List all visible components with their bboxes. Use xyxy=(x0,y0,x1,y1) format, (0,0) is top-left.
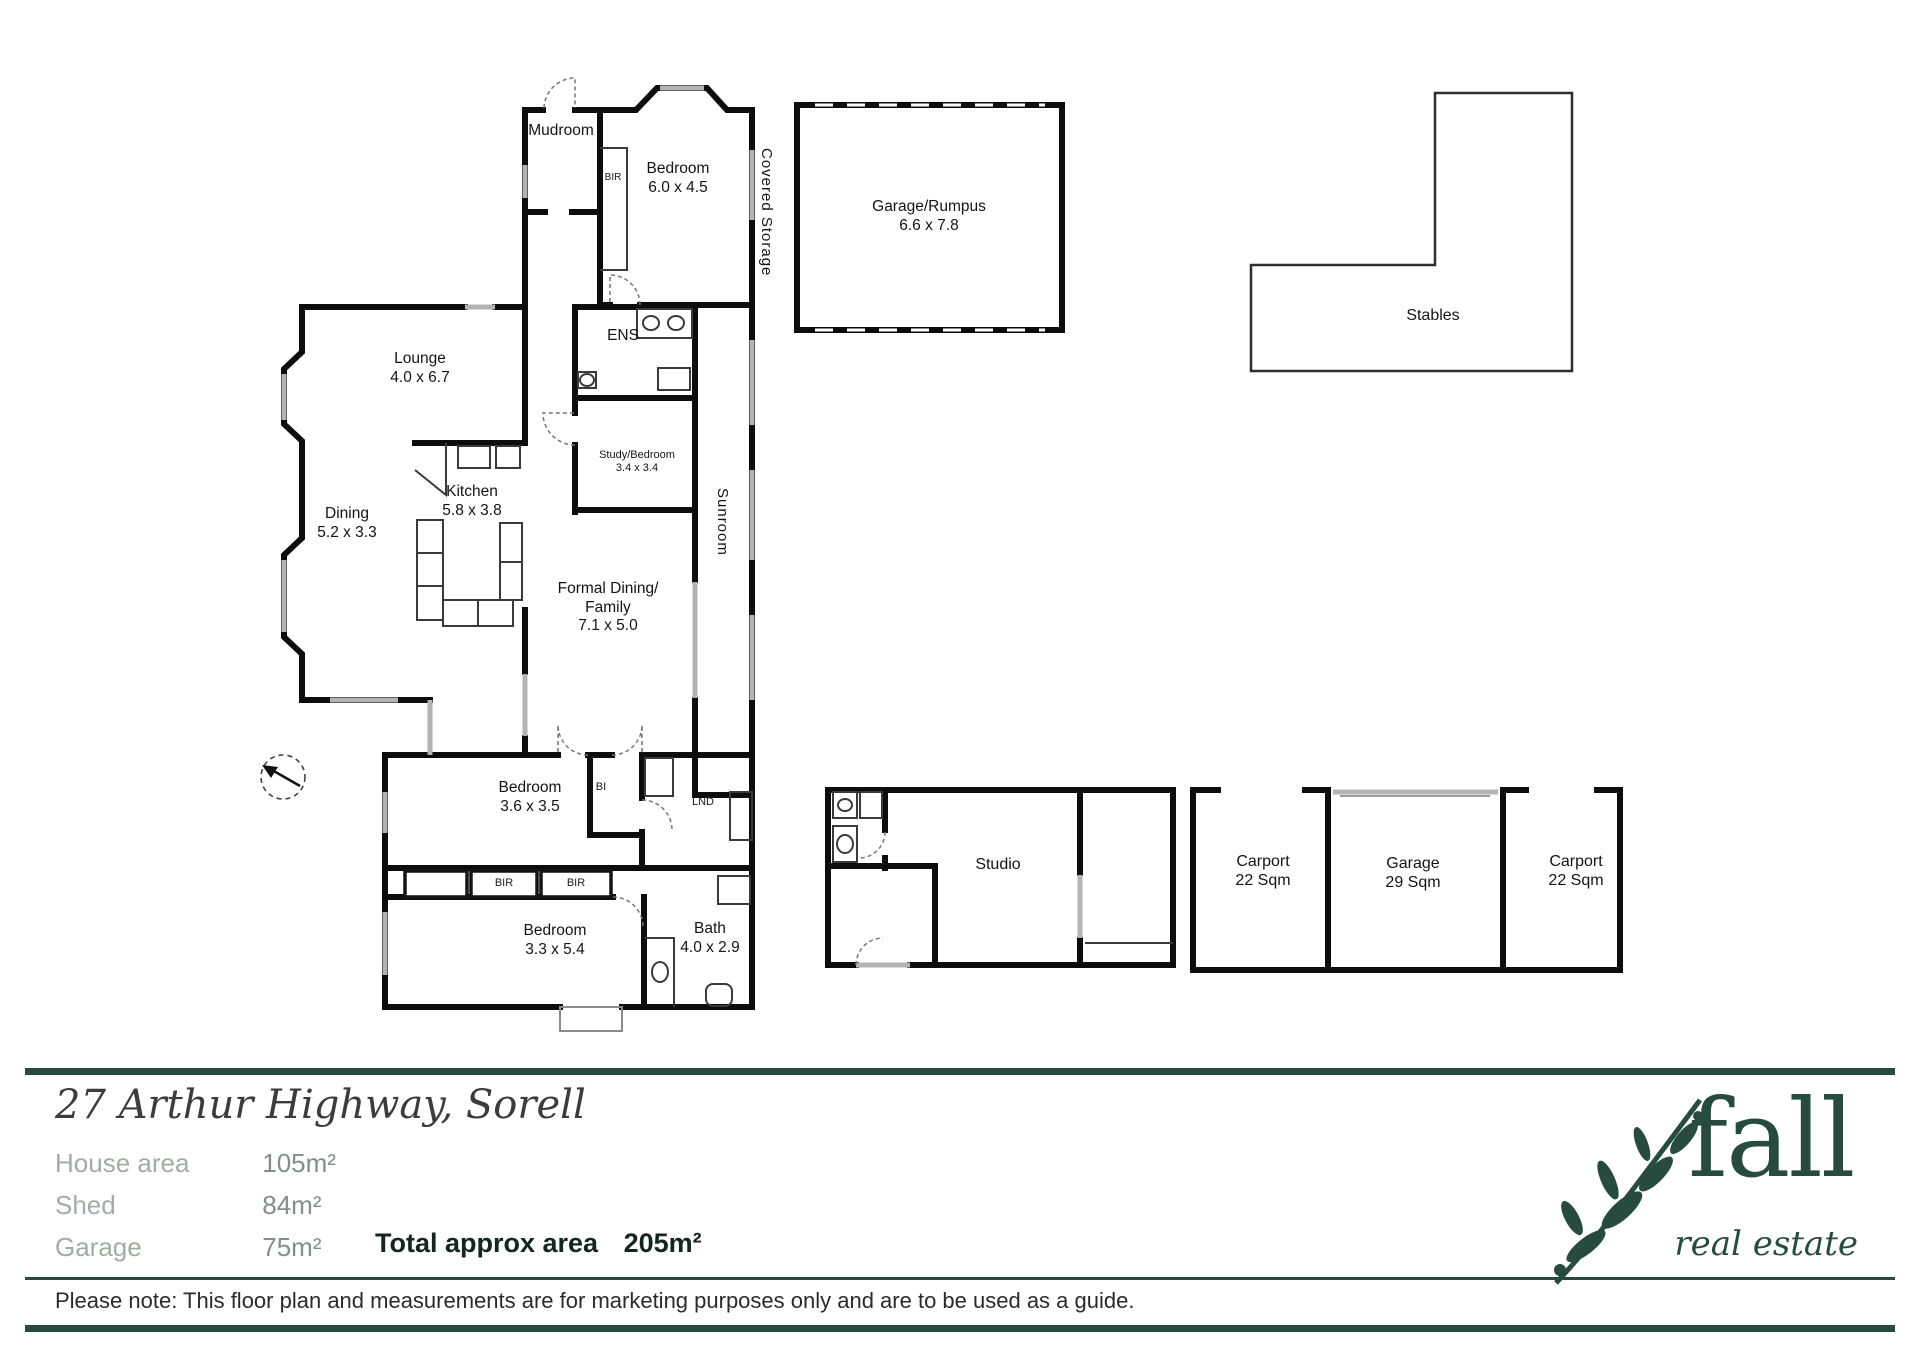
area-row-garage: Garage 75m² xyxy=(55,1232,321,1263)
area-label: Garage xyxy=(55,1232,255,1263)
label-covered-storage: Covered Storage xyxy=(758,148,775,276)
room-label-study-bedroom: Study/Bedroom3.4 x 3.4 xyxy=(599,449,675,475)
room-label-kitchen: Kitchen5.8 x 3.8 xyxy=(442,483,501,520)
logo-brand-text: fall xyxy=(1688,1086,1853,1194)
area-value: 84m² xyxy=(262,1190,321,1220)
closet-label-bir-a: BIR xyxy=(495,877,513,890)
room-label-carport-right: Carport22 Sqm xyxy=(1548,852,1603,890)
total-area-value: 205m² xyxy=(624,1228,702,1258)
room-label-carport-left: Carport22 Sqm xyxy=(1235,852,1290,890)
room-label-garage-rumpus: Garage/Rumpus6.6 x 7.8 xyxy=(872,198,986,235)
property-address: 27 Arthur Highway, Sorell xyxy=(55,1082,586,1128)
total-area: Total approx area 205m² xyxy=(375,1228,702,1259)
room-label-bedroom-top: Bedroom6.0 x 4.5 xyxy=(647,160,710,197)
porch-step xyxy=(560,1007,622,1031)
room-label-studio: Studio xyxy=(975,855,1020,874)
divider-bottom xyxy=(25,1325,1895,1332)
area-label: House area xyxy=(55,1148,255,1179)
total-area-label: Total approx area xyxy=(375,1228,598,1258)
area-value: 105m² xyxy=(262,1148,336,1178)
room-label-bedroom-mid: Bedroom3.6 x 3.5 xyxy=(499,779,562,816)
room-label-ens: ENS xyxy=(607,327,639,346)
label-sunroom: Sunroom xyxy=(714,488,731,556)
room-label-mudroom: Mudroom xyxy=(528,122,593,141)
disclaimer-text: Please note: This floor plan and measure… xyxy=(55,1288,1134,1314)
closet-label-bir-top: BIR xyxy=(605,172,622,184)
floorplan-drawing xyxy=(0,0,1920,1075)
divider-top xyxy=(25,1068,1895,1075)
area-value: 75m² xyxy=(262,1232,321,1262)
room-label-bedroom-bottom: Bedroom3.3 x 5.4 xyxy=(524,922,587,959)
room-label-garage-shed: Garage29 Sqm xyxy=(1385,854,1440,892)
room-label-stables: Stables xyxy=(1406,306,1459,325)
room-label-formal-dining: Formal Dining/Family7.1 x 5.0 xyxy=(558,580,659,636)
logo-tagline-text: real estate xyxy=(1660,1224,1858,1264)
closet-label-bi: BI xyxy=(596,781,606,794)
area-row-shed: Shed 84m² xyxy=(55,1190,321,1221)
closet-label-bir-b: BIR xyxy=(567,877,585,890)
area-label: Shed xyxy=(55,1190,255,1221)
floorplan-page: Mudroom Bedroom6.0 x 4.5 BIR Covered Sto… xyxy=(0,0,1920,1357)
label-laundry: LND xyxy=(692,796,714,809)
floorplan-area: Mudroom Bedroom6.0 x 4.5 BIR Covered Sto… xyxy=(0,0,1920,1075)
north-compass xyxy=(261,755,305,799)
area-row-house: House area 105m² xyxy=(55,1148,336,1179)
room-label-bath: Bath4.0 x 2.9 xyxy=(680,920,739,957)
room-label-dining: Dining5.2 x 3.3 xyxy=(317,505,376,542)
stables-outline xyxy=(1251,93,1572,371)
room-label-lounge: Lounge4.0 x 6.7 xyxy=(390,350,449,387)
